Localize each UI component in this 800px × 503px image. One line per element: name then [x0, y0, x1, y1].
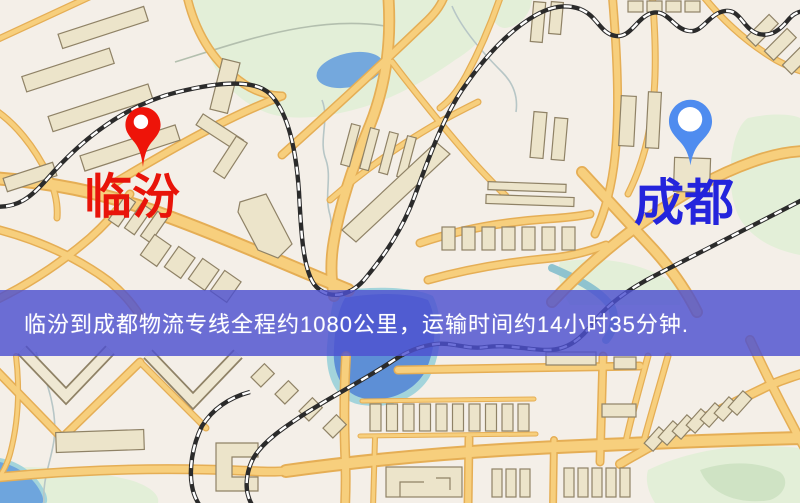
origin-pin-icon[interactable]: [124, 106, 162, 169]
map-screenshot: 临汾 成都 临汾到成都物流专线全程约1080公里，运输时间约14小时35分钟.: [0, 0, 800, 503]
map-canvas: [0, 0, 800, 503]
origin-city-label: 临汾: [84, 174, 180, 222]
destination-city-label: 成都: [634, 178, 734, 228]
route-info-banner: 临汾到成都物流专线全程约1080公里，运输时间约14小时35分钟.: [0, 290, 800, 356]
route-info-text: 临汾到成都物流专线全程约1080公里，运输时间约14小时35分钟.: [0, 307, 689, 339]
destination-pin-icon[interactable]: [667, 98, 714, 168]
